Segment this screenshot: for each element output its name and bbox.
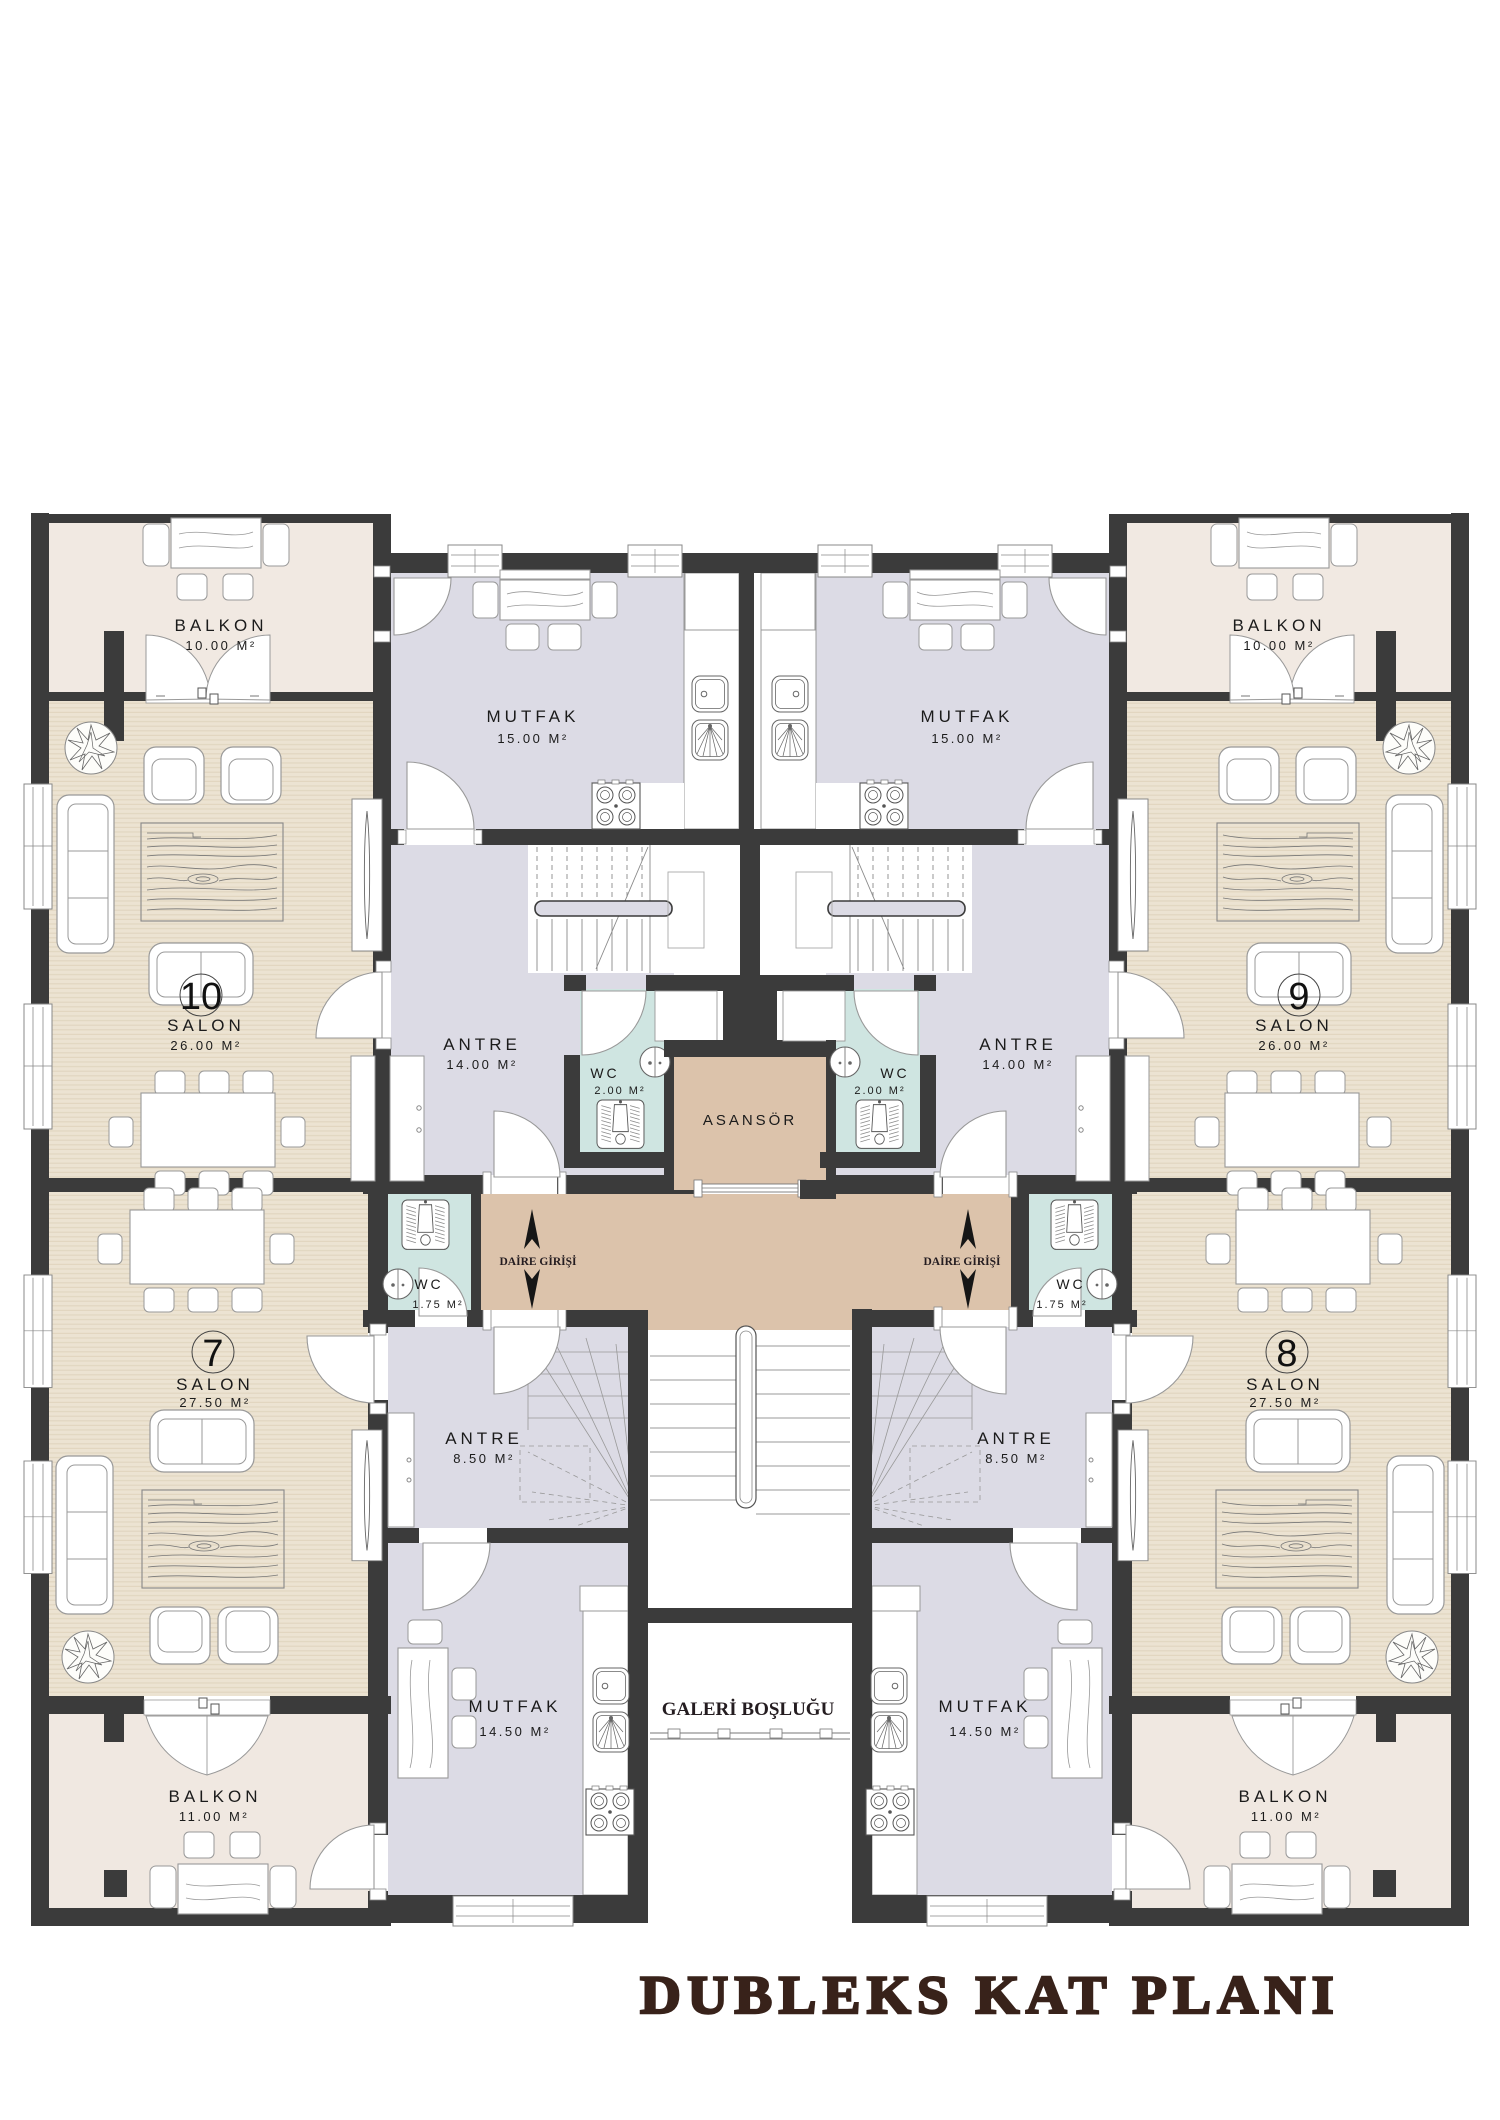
svg-text:14.00 M²: 14.00 M² — [982, 1057, 1053, 1072]
svg-text:DAİRE GİRİŞİ: DAİRE GİRİŞİ — [499, 1254, 577, 1268]
svg-text:ANTRE: ANTRE — [979, 1035, 1057, 1054]
svg-text:DAİRE GİRİŞİ: DAİRE GİRİŞİ — [923, 1254, 1001, 1268]
svg-text:DUBLEKS KAT PLANI: DUBLEKS KAT PLANI — [640, 1965, 1340, 2025]
svg-text:8: 8 — [1276, 1333, 1297, 1375]
svg-text:9: 9 — [1288, 976, 1309, 1018]
svg-text:BALKON: BALKON — [1239, 1787, 1332, 1806]
svg-text:8.50 M²: 8.50 M² — [985, 1451, 1047, 1466]
svg-text:ANTRE: ANTRE — [977, 1429, 1055, 1448]
svg-text:26.00 M²: 26.00 M² — [170, 1038, 241, 1053]
svg-text:BALKON: BALKON — [169, 1787, 262, 1806]
svg-text:2.00 M²: 2.00 M² — [854, 1085, 905, 1097]
svg-text:MUTFAK: MUTFAK — [939, 1697, 1032, 1716]
svg-text:ANTRE: ANTRE — [445, 1429, 523, 1448]
svg-text:15.00 M²: 15.00 M² — [497, 731, 568, 746]
svg-text:7: 7 — [202, 1333, 223, 1375]
svg-text:SALON: SALON — [176, 1375, 254, 1394]
svg-text:WC: WC — [590, 1065, 619, 1081]
svg-text:15.00 M²: 15.00 M² — [931, 731, 1002, 746]
svg-text:1.75 M²: 1.75 M² — [1036, 1299, 1087, 1311]
svg-text:ASANSÖR: ASANSÖR — [703, 1111, 797, 1129]
svg-text:BALKON: BALKON — [1233, 616, 1326, 635]
svg-text:SALON: SALON — [1246, 1375, 1324, 1394]
svg-text:MUTFAK: MUTFAK — [487, 707, 580, 726]
svg-text:27.50 M²: 27.50 M² — [1249, 1395, 1320, 1410]
svg-text:BALKON: BALKON — [175, 616, 268, 635]
svg-text:27.50 M²: 27.50 M² — [179, 1395, 250, 1410]
svg-text:10.00 M²: 10.00 M² — [185, 638, 256, 653]
svg-text:10.00 M²: 10.00 M² — [1243, 638, 1314, 653]
svg-text:WC: WC — [414, 1276, 443, 1292]
svg-text:11.00 M²: 11.00 M² — [179, 1809, 249, 1824]
svg-text:10: 10 — [180, 976, 222, 1018]
svg-text:14.00 M²: 14.00 M² — [446, 1057, 517, 1072]
svg-text:MUTFAK: MUTFAK — [921, 707, 1014, 726]
svg-text:14.50 M²: 14.50 M² — [479, 1724, 550, 1739]
svg-text:1.75 M²: 1.75 M² — [412, 1299, 463, 1311]
svg-text:WC: WC — [1056, 1276, 1085, 1292]
svg-text:ANTRE: ANTRE — [443, 1035, 521, 1054]
svg-text:11.00 M²: 11.00 M² — [1251, 1809, 1321, 1824]
svg-text:26.00 M²: 26.00 M² — [1258, 1038, 1329, 1053]
svg-text:WC: WC — [880, 1065, 909, 1081]
svg-text:14.50 M²: 14.50 M² — [949, 1724, 1020, 1739]
svg-text:SALON: SALON — [1255, 1016, 1333, 1035]
svg-text:GALERİ BOŞLUĞU: GALERİ BOŞLUĞU — [662, 1698, 835, 1720]
svg-text:MUTFAK: MUTFAK — [469, 1697, 562, 1716]
svg-text:SALON: SALON — [167, 1016, 245, 1035]
svg-text:2.00 M²: 2.00 M² — [594, 1085, 645, 1097]
svg-text:8.50 M²: 8.50 M² — [453, 1451, 515, 1466]
